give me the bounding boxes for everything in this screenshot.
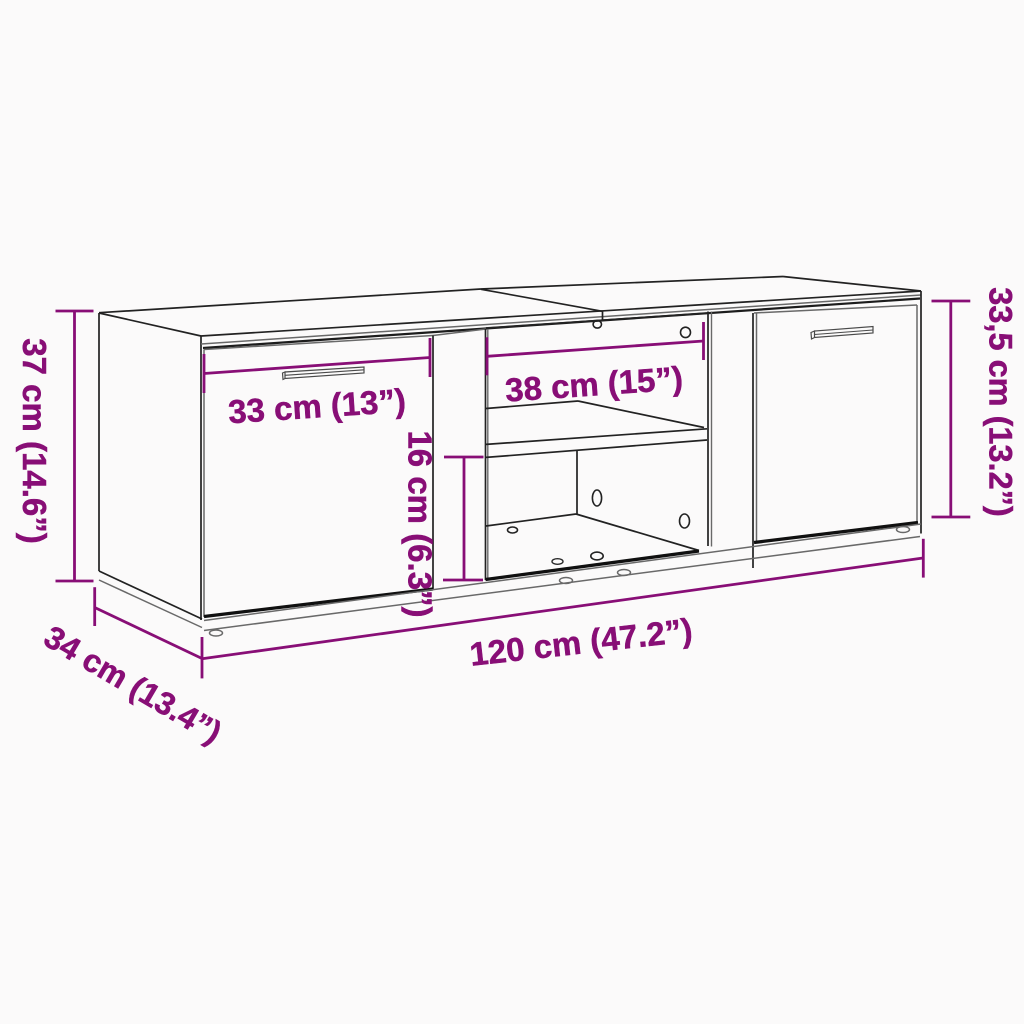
svg-text:37 cm (14.6”): 37 cm (14.6”) [16, 338, 53, 543]
svg-text:16 cm (6.3”): 16 cm (6.3”) [402, 430, 439, 617]
svg-text:33,5 cm (13.2”): 33,5 cm (13.2”) [983, 287, 1019, 516]
